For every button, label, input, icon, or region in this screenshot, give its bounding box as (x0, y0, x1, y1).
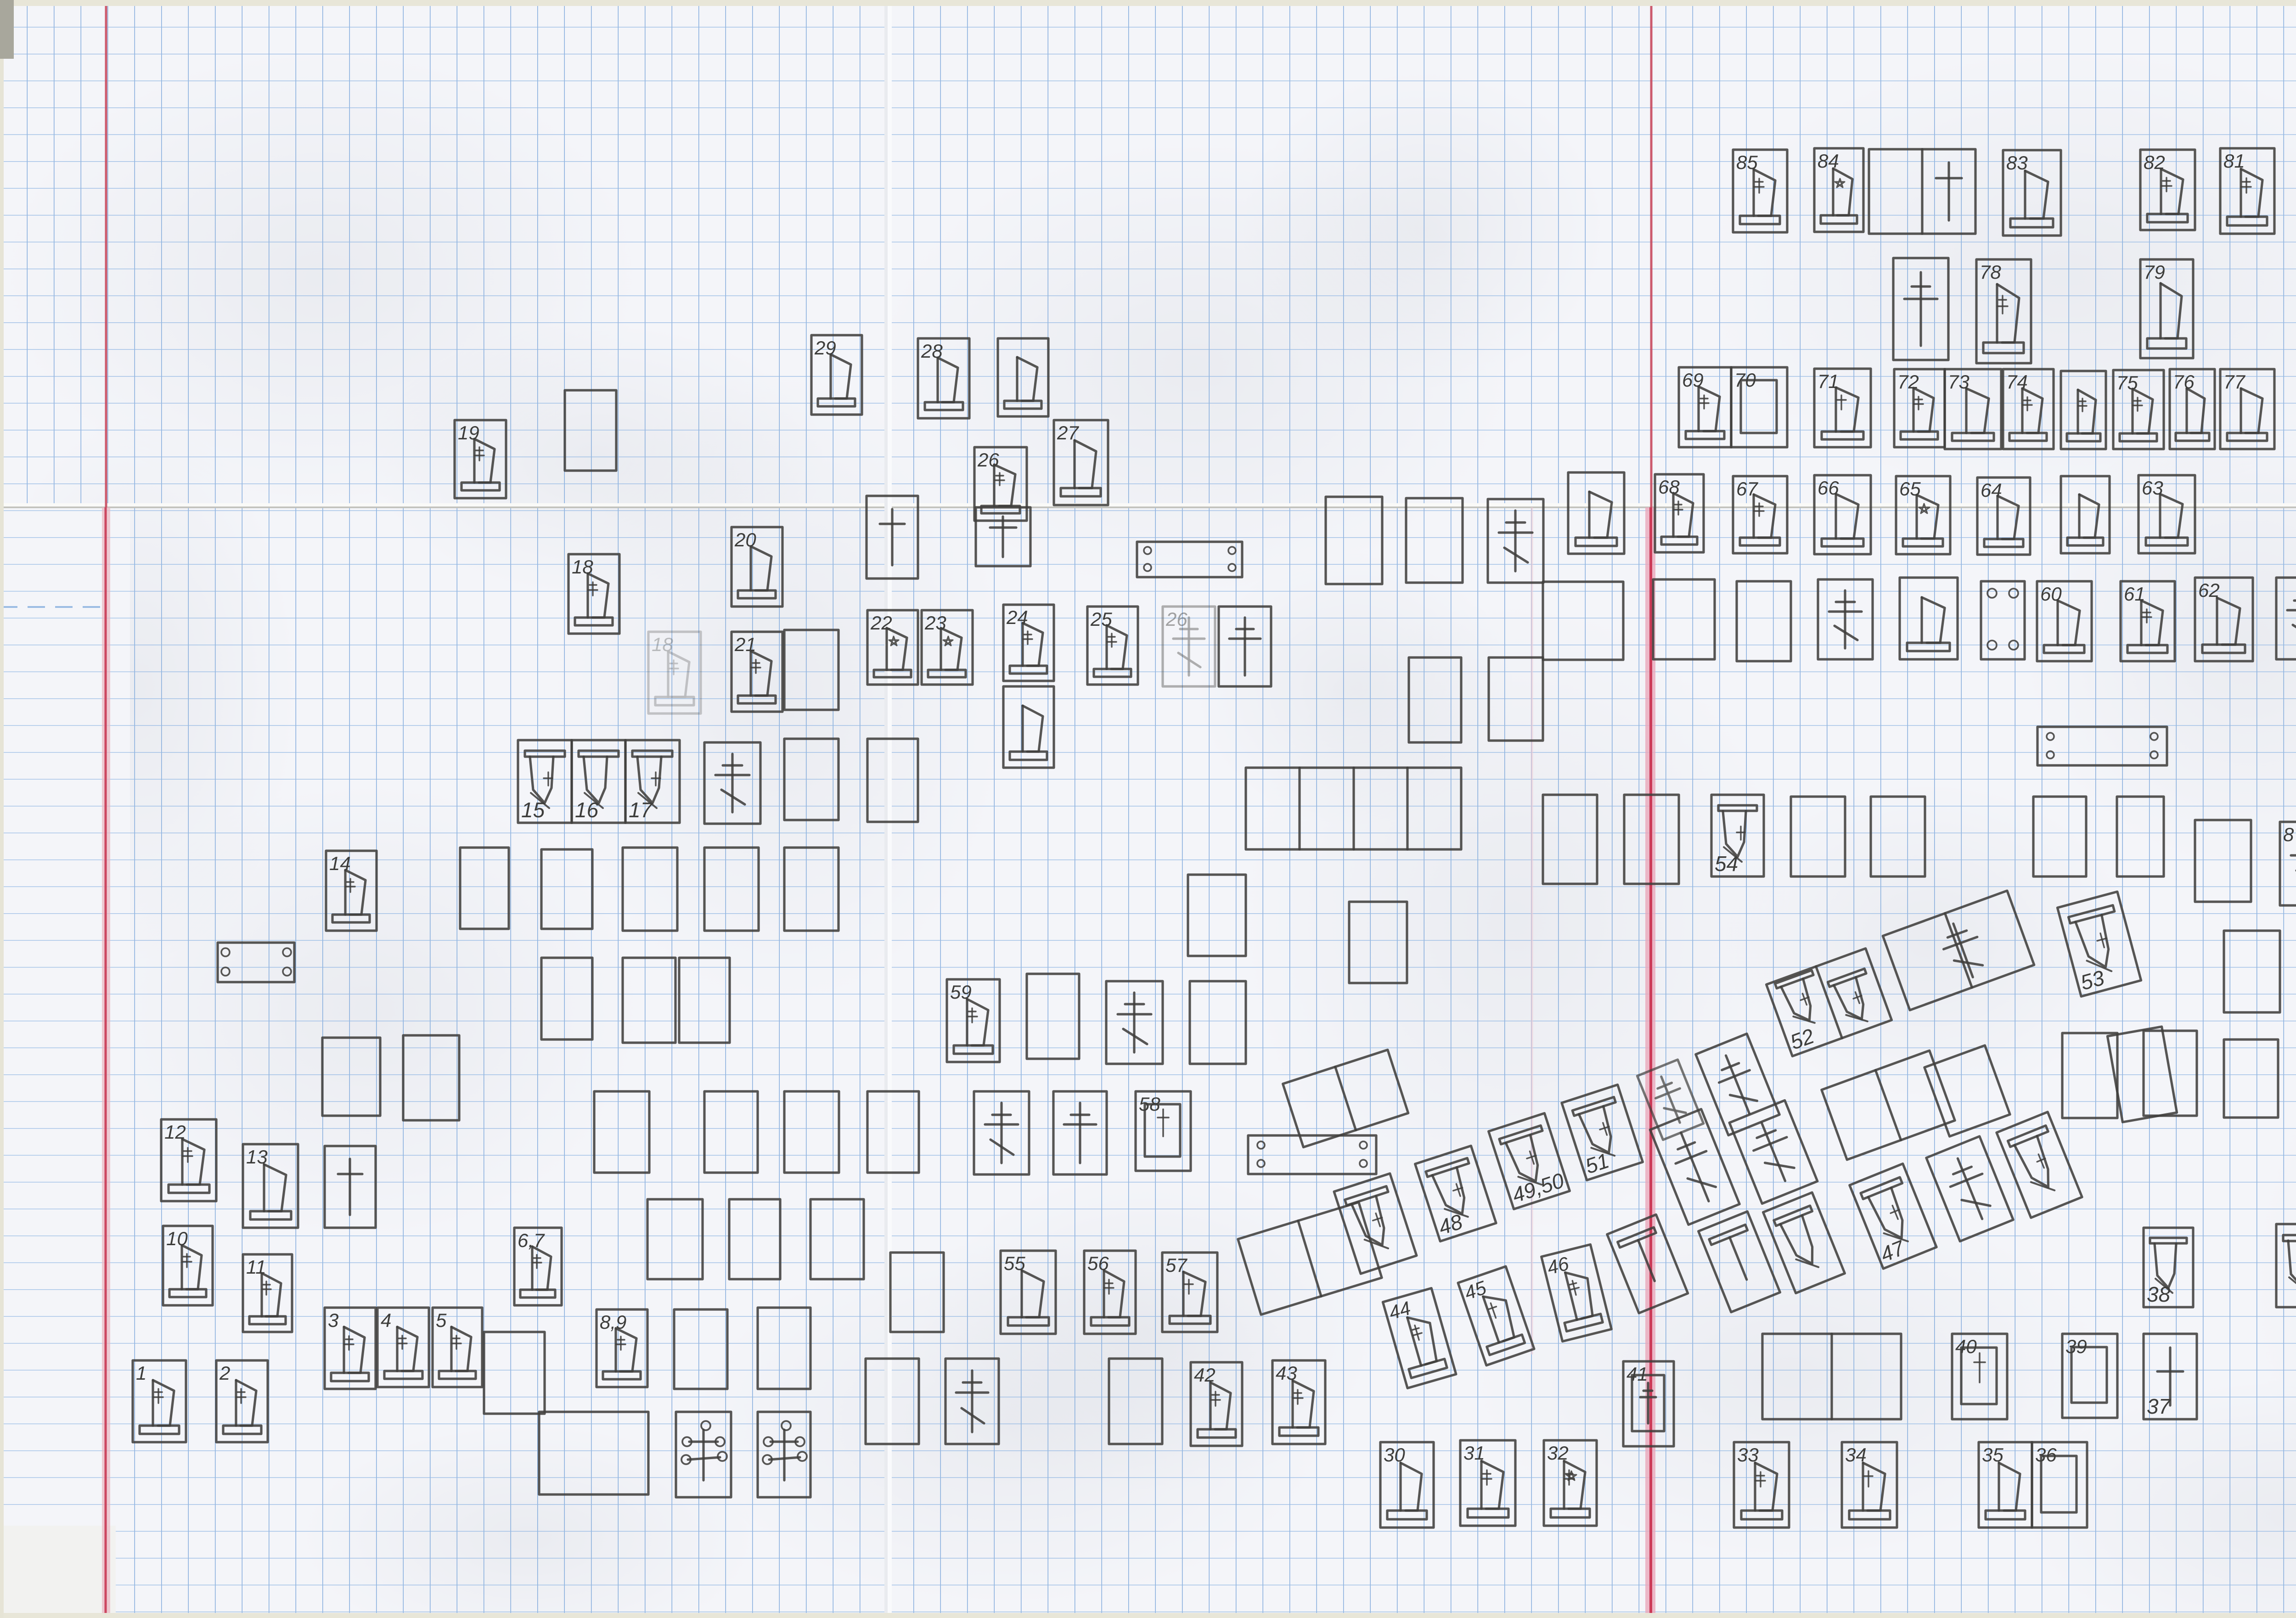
svg-text:78: 78 (1980, 261, 2001, 283)
svg-text:25: 25 (1090, 608, 1112, 630)
svg-text:42: 42 (1194, 1364, 1216, 1386)
svg-text:13: 13 (246, 1146, 268, 1168)
svg-text:19: 19 (458, 422, 479, 444)
svg-text:40: 40 (1955, 1336, 1977, 1357)
svg-text:37: 37 (2147, 1394, 2171, 1418)
svg-text:70: 70 (1734, 369, 1756, 391)
svg-text:64: 64 (1981, 479, 2002, 501)
svg-text:58: 58 (1139, 1093, 1160, 1115)
svg-text:74: 74 (2006, 371, 2028, 393)
svg-text:63: 63 (2142, 477, 2163, 499)
svg-text:60: 60 (2040, 583, 2062, 605)
svg-text:61: 61 (2124, 583, 2145, 605)
svg-text:22: 22 (870, 612, 892, 634)
svg-text:62: 62 (2198, 579, 2220, 601)
svg-text:75: 75 (2116, 372, 2138, 393)
svg-text:20: 20 (734, 529, 756, 551)
svg-text:36: 36 (2035, 1444, 2057, 1466)
svg-text:69: 69 (1682, 369, 1704, 391)
svg-text:26: 26 (1165, 608, 1187, 630)
svg-text:66: 66 (1818, 477, 1839, 499)
svg-text:65: 65 (1899, 478, 1921, 500)
svg-text:15: 15 (521, 798, 545, 822)
svg-text:12: 12 (164, 1121, 186, 1143)
svg-text:57: 57 (1165, 1254, 1187, 1276)
svg-text:33: 33 (1737, 1444, 1759, 1466)
svg-text:18: 18 (652, 634, 673, 655)
svg-text:59: 59 (950, 981, 972, 1003)
svg-text:27: 27 (1057, 422, 1079, 444)
svg-text:24: 24 (1006, 607, 1028, 628)
svg-text:23: 23 (924, 612, 946, 634)
svg-text:6,7: 6,7 (518, 1230, 545, 1251)
svg-text:34: 34 (1845, 1444, 1867, 1466)
svg-text:43: 43 (1276, 1362, 1297, 1384)
svg-text:87: 87 (2283, 824, 2296, 845)
svg-text:68: 68 (1658, 476, 1680, 498)
svg-text:17: 17 (629, 798, 653, 822)
svg-text:4: 4 (381, 1309, 391, 1331)
svg-text:21: 21 (734, 634, 756, 655)
svg-text:31: 31 (1463, 1442, 1485, 1464)
svg-text:11: 11 (246, 1256, 266, 1278)
svg-text:67: 67 (1736, 478, 1758, 500)
svg-text:73: 73 (1948, 371, 1970, 393)
svg-text:76: 76 (2173, 371, 2195, 393)
svg-text:77: 77 (2223, 371, 2245, 393)
svg-text:79: 79 (2144, 261, 2165, 283)
svg-text:29: 29 (814, 337, 836, 359)
svg-text:32: 32 (1547, 1442, 1569, 1464)
svg-text:5: 5 (436, 1309, 447, 1331)
svg-text:14: 14 (329, 853, 351, 874)
svg-text:39: 39 (2065, 1336, 2087, 1357)
svg-text:84: 84 (1818, 150, 1839, 172)
svg-text:54: 54 (1715, 852, 1738, 876)
svg-text:1: 1 (136, 1362, 146, 1384)
svg-text:56: 56 (1087, 1253, 1109, 1274)
svg-text:35: 35 (1982, 1444, 2003, 1466)
svg-text:85: 85 (1736, 152, 1758, 173)
svg-text:83: 83 (2006, 152, 2028, 174)
svg-text:28: 28 (921, 340, 943, 362)
svg-text:55: 55 (1004, 1253, 1025, 1274)
svg-text:26: 26 (977, 449, 999, 471)
svg-text:30: 30 (1384, 1444, 1405, 1466)
svg-text:41: 41 (1626, 1363, 1648, 1385)
svg-text:81: 81 (2223, 150, 2245, 172)
svg-text:2: 2 (219, 1362, 230, 1384)
svg-text:16: 16 (575, 798, 599, 822)
svg-text:18: 18 (572, 556, 593, 578)
svg-text:38: 38 (2147, 1282, 2171, 1306)
svg-text:10: 10 (166, 1228, 188, 1249)
svg-text:8,9: 8,9 (600, 1311, 626, 1333)
svg-text:72: 72 (1897, 371, 1919, 393)
svg-text:82: 82 (2144, 152, 2165, 173)
svg-text:3: 3 (328, 1309, 338, 1331)
svg-text:71: 71 (1818, 371, 1839, 392)
